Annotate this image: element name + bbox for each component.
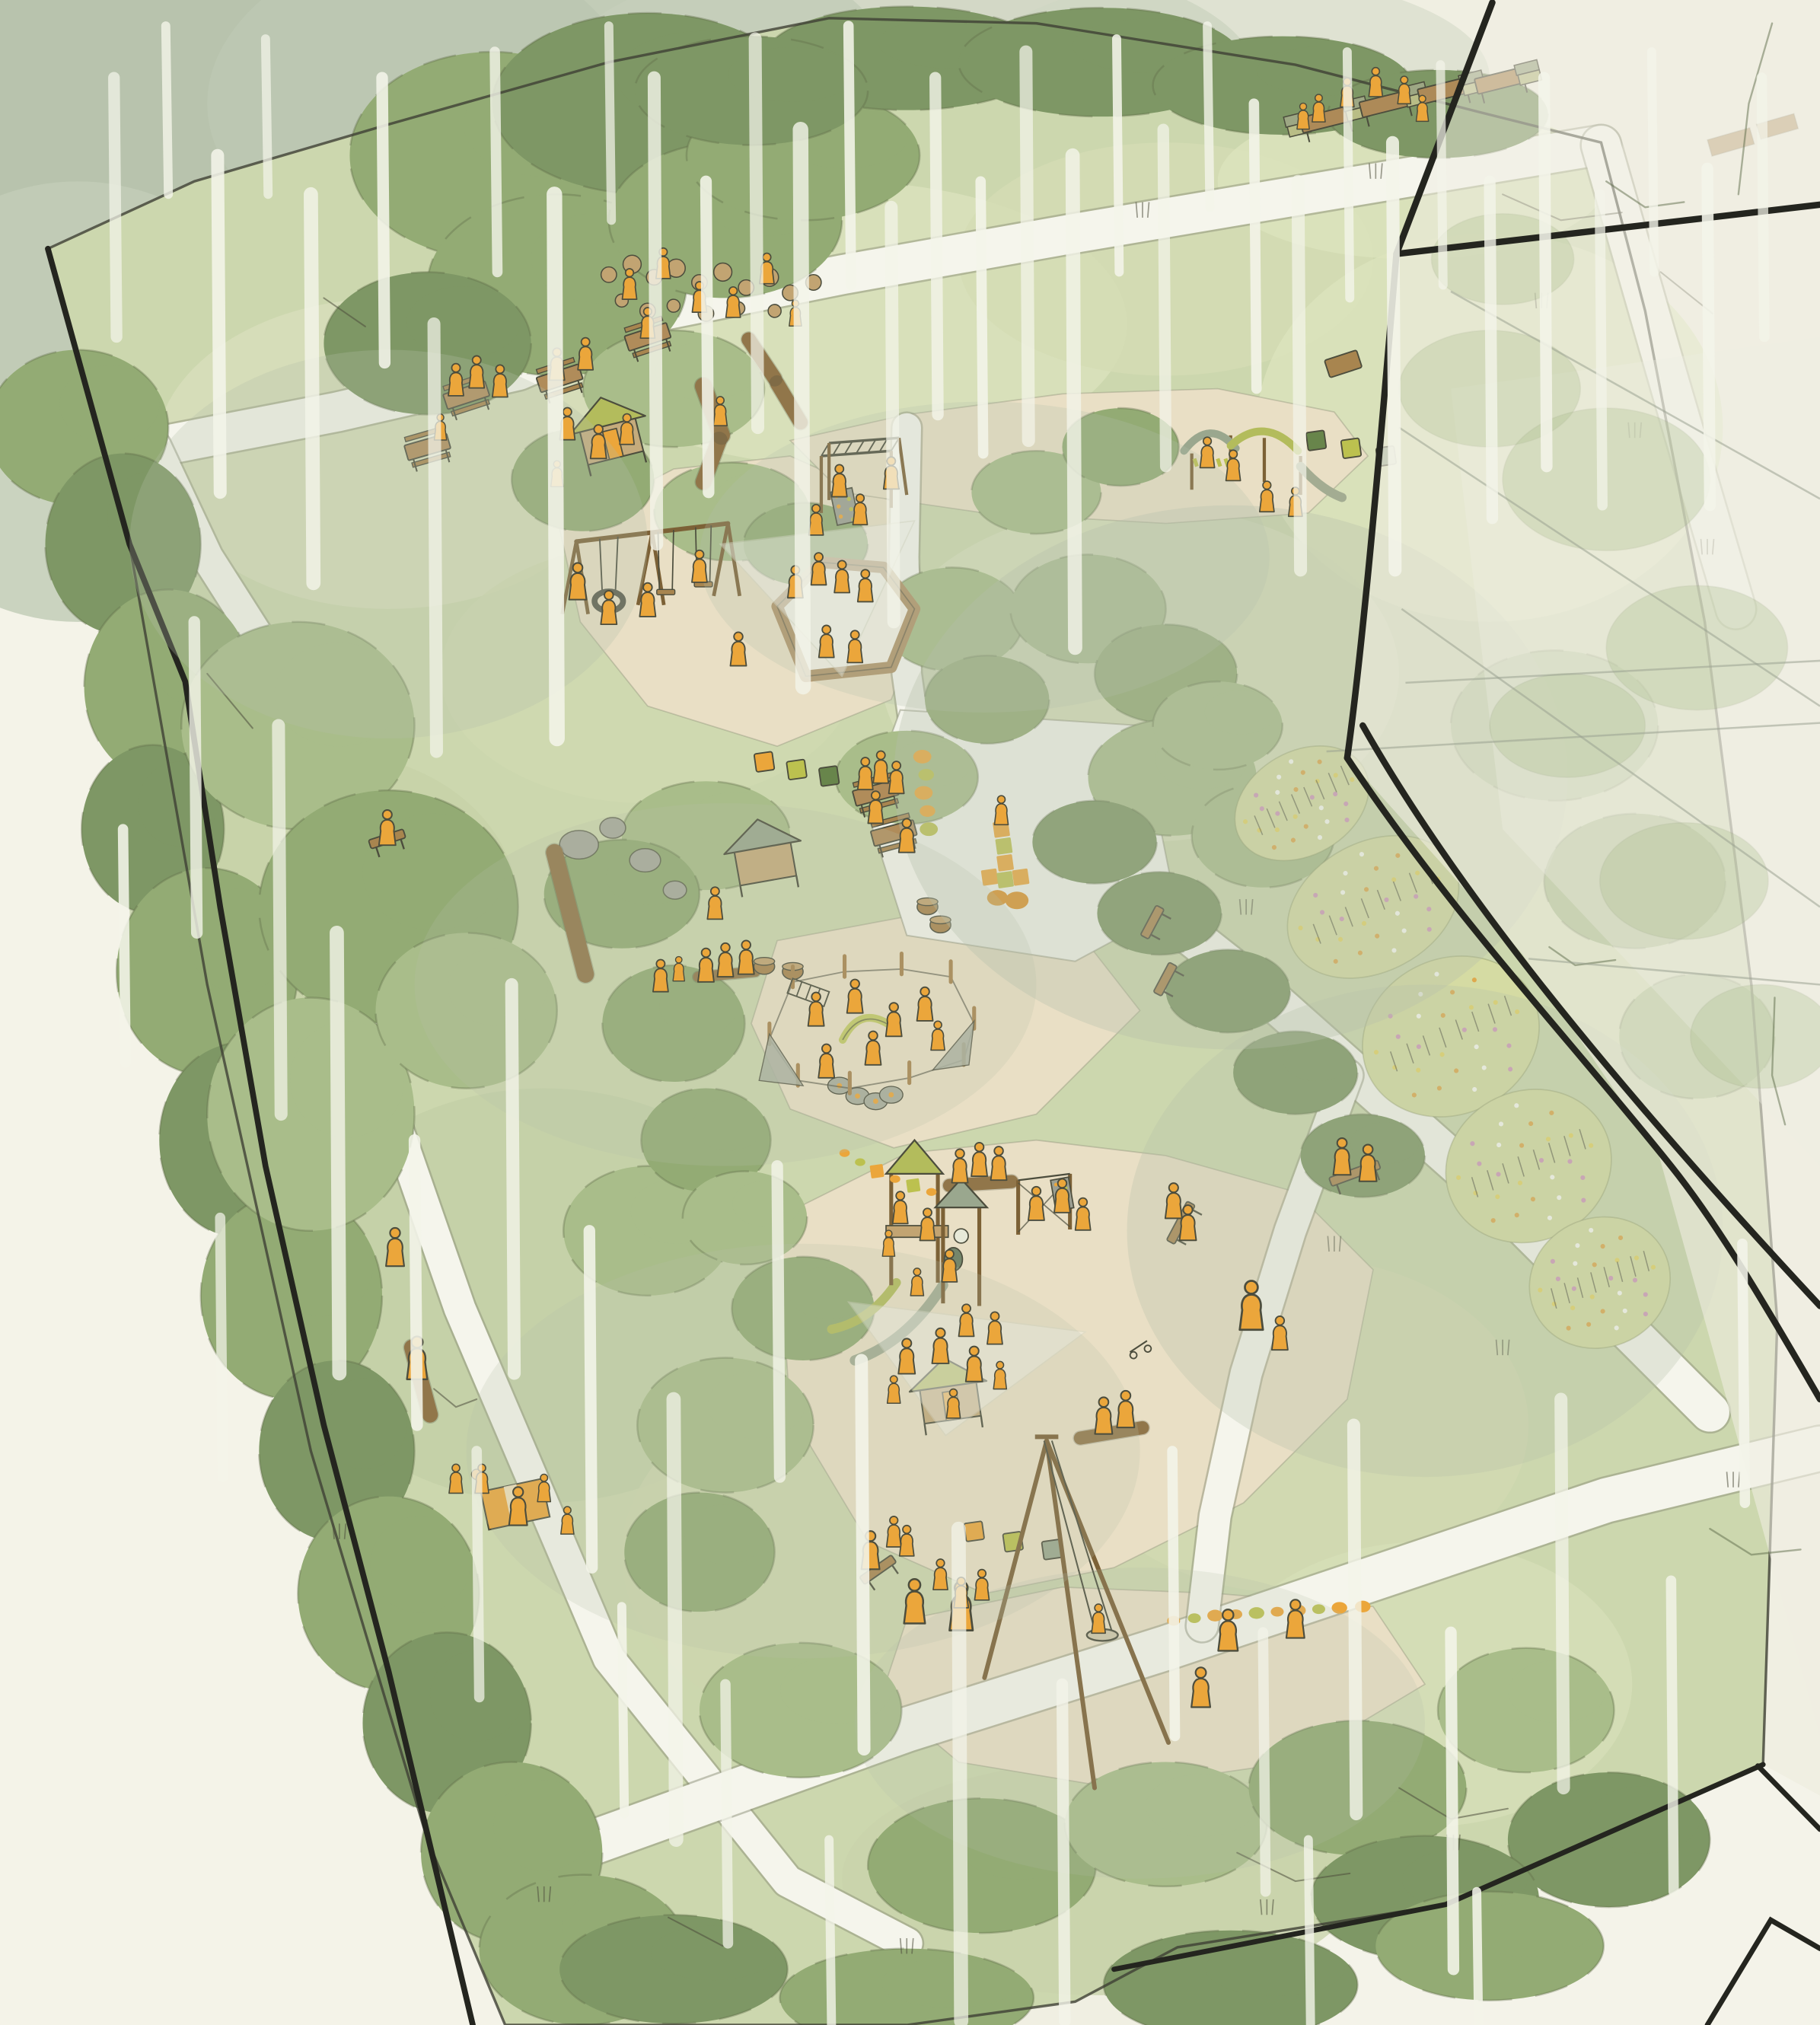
rain-streak <box>777 1166 779 1477</box>
person-body <box>718 952 734 977</box>
ghost-shrub <box>1691 984 1820 1088</box>
rain-streak <box>1600 194 1602 505</box>
person-body <box>713 405 727 426</box>
person-head <box>913 1268 920 1275</box>
rain-streak <box>1761 78 1764 336</box>
person-body <box>1286 1610 1305 1638</box>
person-head <box>604 591 614 600</box>
rain-streak <box>1544 78 1547 467</box>
person-body <box>873 760 888 783</box>
rain-streak <box>1347 52 1350 298</box>
person-head <box>1372 68 1379 75</box>
ghost-shrub <box>1606 585 1787 710</box>
rain-streak <box>725 1684 728 1943</box>
person-body <box>917 997 933 1021</box>
rain-streak <box>554 194 556 738</box>
person-head <box>1183 1205 1192 1214</box>
person-head <box>856 494 865 502</box>
person-head <box>496 365 504 373</box>
person-head <box>892 761 900 770</box>
person-head <box>1196 1667 1206 1678</box>
person-head <box>975 1143 984 1152</box>
person-body <box>853 502 867 525</box>
cube-seat <box>1341 438 1362 458</box>
rain-streak <box>434 324 436 751</box>
person-head <box>763 254 771 262</box>
rain-streak <box>829 1840 831 2025</box>
person-head <box>970 1347 979 1356</box>
person-head <box>1169 1183 1178 1192</box>
person-head <box>890 1376 897 1382</box>
person-head <box>903 1526 911 1534</box>
person-body <box>1200 445 1215 467</box>
person-head <box>850 980 859 989</box>
rain-streak <box>801 129 803 687</box>
person-head <box>711 887 719 895</box>
person-body <box>991 1156 1007 1180</box>
person-body <box>811 562 827 585</box>
person-head <box>936 1559 945 1567</box>
tree-canopy-lobe <box>728 47 856 101</box>
person-body <box>386 1239 404 1266</box>
person-body <box>731 642 747 666</box>
rain-streak <box>114 78 116 336</box>
person-head <box>721 943 730 952</box>
trail-marker <box>926 1188 937 1196</box>
person-head <box>861 757 869 766</box>
person-body <box>889 770 904 793</box>
person-head <box>1079 1198 1087 1207</box>
person-head <box>1263 481 1271 490</box>
rain-streak <box>1392 142 1394 570</box>
person-body <box>819 634 834 657</box>
person-head <box>643 583 652 592</box>
person-head <box>1032 1187 1041 1196</box>
person-body <box>809 513 824 535</box>
person-body <box>868 800 883 823</box>
site-plan-canvas <box>0 0 1820 2025</box>
person-body <box>931 1029 945 1050</box>
person-body <box>707 896 722 919</box>
person-head <box>909 1579 920 1590</box>
person-head <box>861 569 869 578</box>
person-head <box>626 269 634 277</box>
person-head <box>390 1228 400 1238</box>
person-body <box>987 1321 1002 1344</box>
person-head <box>1203 437 1212 445</box>
person-body <box>888 1383 900 1403</box>
person-body <box>561 1514 574 1534</box>
person-body <box>1092 1612 1105 1633</box>
person-head <box>695 550 703 559</box>
person-head <box>675 957 681 963</box>
rain-streak <box>1117 39 1119 272</box>
trail-marker <box>855 1158 865 1166</box>
rain-streak <box>589 1231 591 1567</box>
rain-streak <box>862 1360 864 1749</box>
person-body <box>974 1578 989 1600</box>
person-body <box>1359 1155 1377 1182</box>
stump-seat <box>667 299 680 312</box>
rain-streak <box>1263 1632 1265 1891</box>
person-body <box>569 573 587 600</box>
cube-seat <box>754 751 775 772</box>
person-head <box>1337 1138 1347 1148</box>
person-body <box>959 1313 974 1336</box>
person-body <box>932 1338 949 1363</box>
person-head <box>890 1516 898 1525</box>
rain-streak <box>1254 104 1256 388</box>
person-head <box>1099 1397 1109 1407</box>
person-head <box>962 1304 971 1312</box>
rain-streak <box>1707 168 1710 505</box>
person-head <box>822 625 830 633</box>
tree-canopy-lobe <box>651 1926 776 1980</box>
rain-streak <box>382 78 384 362</box>
tree-canopy-lobe <box>59 365 159 443</box>
person-head <box>838 560 846 569</box>
person-body <box>904 1592 926 1624</box>
person-head <box>996 1361 1003 1368</box>
tree-canopy-lobe <box>881 1959 1021 2008</box>
rain-streak <box>1163 129 1165 466</box>
person-body <box>620 423 634 445</box>
person-body <box>994 804 1008 824</box>
rain-streak <box>980 181 983 453</box>
person-body <box>858 579 873 601</box>
person-body <box>858 767 873 789</box>
person-head <box>702 949 711 958</box>
person-body <box>1334 1149 1351 1175</box>
tower-porthole <box>954 1229 968 1243</box>
person-head <box>1229 450 1238 458</box>
trail-marker <box>869 1164 884 1178</box>
person-body <box>933 1567 948 1590</box>
person-body <box>1297 110 1309 129</box>
person-body <box>578 346 593 369</box>
tower-platform <box>886 1226 948 1237</box>
person-head <box>934 1021 942 1028</box>
rain-streak <box>1026 52 1028 441</box>
rain-streak <box>755 39 757 428</box>
person-head <box>1290 1599 1300 1609</box>
person-head <box>656 960 665 968</box>
person-body <box>623 277 637 299</box>
bridge-rung <box>1218 458 1220 466</box>
person-body <box>993 1370 1006 1389</box>
person-body <box>738 950 754 974</box>
rain-streak <box>194 622 196 933</box>
person-body <box>1226 458 1241 480</box>
person-body <box>832 474 847 496</box>
person-head <box>869 1032 878 1041</box>
person-body <box>971 1152 987 1176</box>
person-head <box>563 408 572 416</box>
person-head <box>1222 1609 1233 1620</box>
person-head <box>513 1487 523 1497</box>
rain-streak <box>674 1399 676 1840</box>
person-body <box>448 372 464 395</box>
stump-seat <box>601 267 617 282</box>
stump-seat <box>768 305 781 317</box>
stump-seat <box>714 263 732 281</box>
person-head <box>923 1208 932 1217</box>
rain-streak <box>279 725 281 1115</box>
person-body <box>900 1534 914 1556</box>
person-body <box>726 295 741 317</box>
person-head <box>950 1389 958 1397</box>
rain-streak <box>1308 1840 1311 2025</box>
person-head <box>978 1570 986 1578</box>
rain-streak <box>123 829 126 1062</box>
rain-streak <box>1671 1580 1673 1891</box>
person-body <box>492 374 508 397</box>
ghost-shrub <box>1431 214 1573 305</box>
person-body <box>601 600 617 624</box>
person-head <box>994 1146 1003 1156</box>
person-body <box>808 1002 824 1026</box>
tree-canopy-lobe <box>406 286 521 358</box>
rain-streak <box>166 26 168 194</box>
person-body <box>1260 490 1274 512</box>
person-head <box>902 1338 911 1347</box>
person-body <box>673 963 684 981</box>
person-body <box>591 434 607 458</box>
person-body <box>1028 1196 1044 1220</box>
person-body <box>1312 102 1325 122</box>
rain-streak <box>1561 1399 1563 1788</box>
person-body <box>692 560 707 582</box>
person-head <box>902 818 911 828</box>
person-head <box>872 791 880 799</box>
person-head <box>1363 1145 1373 1155</box>
person-head <box>822 1044 831 1054</box>
person-head <box>814 553 823 561</box>
tree-canopy-lobe <box>1467 1902 1592 1956</box>
rain-streak <box>1440 65 1442 285</box>
person-body <box>1180 1215 1197 1240</box>
rain-streak <box>1207 26 1210 207</box>
tree-canopy-lobe <box>493 1780 593 1870</box>
rain-streak <box>1451 1632 1453 1969</box>
person-head <box>1095 1604 1102 1612</box>
person-head <box>945 1250 954 1258</box>
person-body <box>887 1525 901 1547</box>
person-head <box>734 632 743 641</box>
person-body <box>1076 1207 1091 1229</box>
person-head <box>1300 103 1307 110</box>
person-body <box>966 1357 983 1382</box>
rain-streak <box>415 1140 417 1425</box>
person-body <box>865 1041 881 1065</box>
person-head <box>564 1507 571 1513</box>
rain-streak <box>1490 181 1492 518</box>
person-body <box>898 1348 915 1373</box>
cube-seat <box>1306 430 1327 451</box>
watercolor-park-site-plan <box>0 0 1820 2025</box>
rain-streak <box>1652 52 1654 272</box>
person-head <box>811 993 821 1002</box>
person-head <box>452 1464 460 1472</box>
person-head <box>935 1328 945 1338</box>
person-head <box>1058 1179 1067 1188</box>
trail-marker <box>906 1178 920 1193</box>
person-body <box>1165 1193 1182 1218</box>
rain-streak <box>495 52 497 272</box>
rain-streak <box>622 1606 624 1813</box>
person-head <box>383 810 392 819</box>
person-head <box>877 751 885 760</box>
person-head <box>997 796 1005 803</box>
person-body <box>834 569 849 592</box>
person-body <box>1398 84 1410 104</box>
person-head <box>990 1312 999 1320</box>
cube-seat <box>819 766 840 786</box>
person-body <box>946 1397 960 1417</box>
rain-streak <box>1477 1892 1479 2025</box>
tree-canopy-lobe <box>732 1181 801 1227</box>
person-head <box>889 1003 898 1012</box>
person-head <box>716 397 724 404</box>
person-head <box>594 425 603 434</box>
rain-streak <box>1062 1684 1064 2020</box>
rain-streak <box>609 26 611 220</box>
person-body <box>1369 75 1382 96</box>
person-head <box>1401 76 1407 83</box>
person-body <box>886 1012 902 1036</box>
person-body <box>847 639 862 662</box>
person-head <box>473 356 481 364</box>
person-head <box>741 940 751 949</box>
person-body <box>509 1497 528 1525</box>
person-head <box>1315 94 1322 101</box>
person-body <box>942 1259 957 1282</box>
person-body <box>1191 1679 1210 1708</box>
person-body <box>1054 1188 1070 1213</box>
person-body <box>449 1472 463 1493</box>
rain-streak <box>477 1451 479 1697</box>
rain-streak <box>654 78 656 544</box>
person-body <box>537 1482 550 1502</box>
rain-streak <box>1742 1244 1745 1503</box>
person-body <box>882 1238 894 1257</box>
person-body <box>910 1276 923 1296</box>
rain-streak <box>891 207 894 622</box>
person-body <box>1095 1408 1112 1434</box>
rain-streak <box>218 155 220 492</box>
rain-streak <box>1172 1451 1175 1736</box>
person-body <box>653 968 668 991</box>
swing-seat <box>657 589 675 595</box>
rain-streak <box>336 933 339 1373</box>
person-body <box>893 1201 908 1223</box>
person-head <box>1121 1391 1131 1401</box>
person-body <box>847 989 863 1013</box>
cube-seat <box>786 759 807 780</box>
person-body <box>1416 103 1428 122</box>
person-body <box>469 365 484 387</box>
trail-marker <box>890 1175 900 1183</box>
person-head <box>1245 1281 1257 1294</box>
tree-canopy-lobe <box>371 1516 470 1613</box>
person-body <box>1117 1401 1134 1427</box>
person-head <box>851 630 859 639</box>
ghost-shrub <box>1600 823 1768 939</box>
person-body <box>899 828 915 853</box>
person-head <box>573 563 583 572</box>
person-head <box>1419 95 1426 102</box>
person-body <box>379 820 396 845</box>
rain-streak <box>1298 181 1300 570</box>
rain-streak <box>512 984 514 1373</box>
rain-streak <box>311 194 313 583</box>
rain-streak <box>849 26 851 285</box>
person-body <box>1272 1325 1288 1350</box>
person-head <box>812 505 821 513</box>
person-head <box>623 414 631 423</box>
person-body <box>952 1159 968 1183</box>
person-body <box>920 1217 935 1240</box>
rain-streak <box>266 39 268 194</box>
person-head <box>582 338 590 346</box>
person-head <box>955 1149 964 1158</box>
rain-streak <box>958 1529 961 2021</box>
person-head <box>451 364 460 372</box>
rain-mist <box>855 1567 1425 1878</box>
person-head <box>896 1191 904 1200</box>
person-head <box>729 287 738 295</box>
person-body <box>1240 1294 1263 1329</box>
person-head <box>835 464 843 473</box>
person-body <box>1218 1621 1238 1650</box>
person-head <box>885 1230 892 1237</box>
person-head <box>920 987 929 997</box>
person-head <box>540 1474 547 1481</box>
person-head <box>1276 1316 1285 1325</box>
rain-streak <box>1353 1425 1356 1814</box>
rain-streak <box>1073 155 1075 648</box>
person-body <box>818 1054 834 1078</box>
rain-streak <box>706 181 708 492</box>
rain-streak <box>220 1218 222 1477</box>
person-body <box>639 592 655 617</box>
rain-streak <box>935 78 938 414</box>
person-body <box>698 958 714 982</box>
